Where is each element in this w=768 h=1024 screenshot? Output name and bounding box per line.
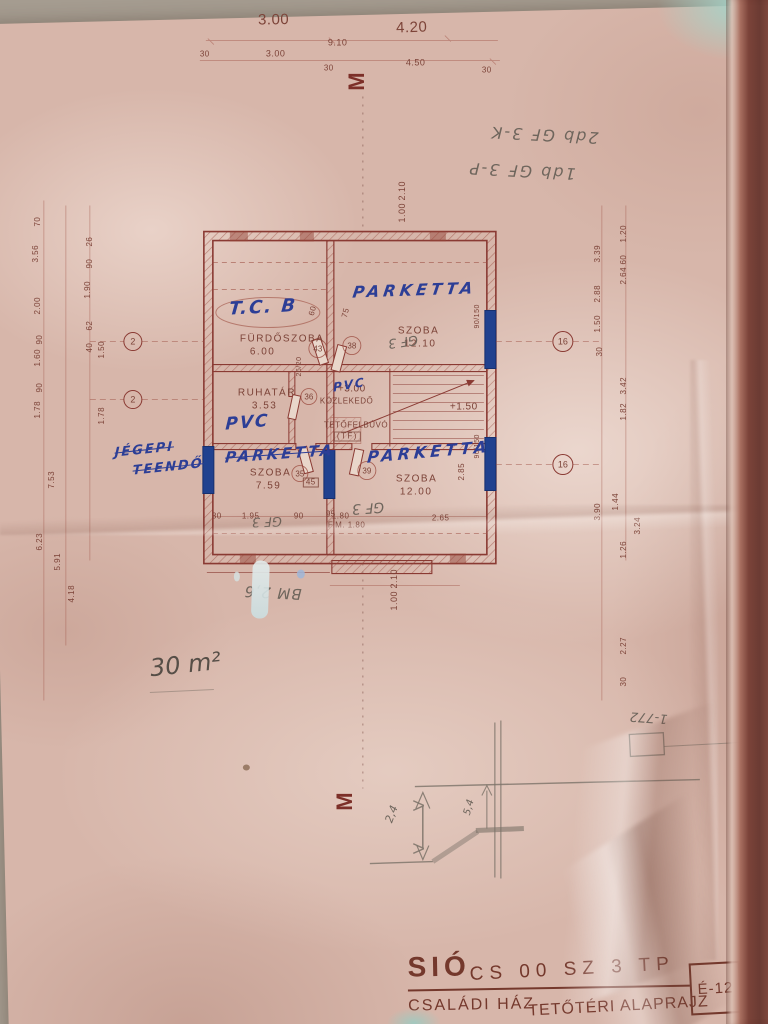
dim-label: 30 bbox=[324, 65, 334, 73]
dim-label: 2.10 bbox=[390, 569, 399, 589]
roof-hatch-label: TETŐFELBÚVÓ bbox=[324, 422, 388, 430]
pencil-area-note: 30 m² bbox=[149, 649, 222, 680]
dim-label: 1.50 bbox=[594, 315, 602, 333]
section-marker-top: M bbox=[344, 72, 370, 90]
dim-label: 40 bbox=[86, 343, 94, 353]
dim-label: 2.00 bbox=[34, 297, 42, 315]
axis-label: 2 bbox=[130, 337, 135, 347]
dim-label: 30 bbox=[596, 347, 604, 357]
axis-label: 16 bbox=[558, 460, 568, 470]
dim-label: 2.88 bbox=[594, 285, 602, 303]
dim-label: 45 bbox=[303, 478, 319, 488]
pencil-note-top-right-1: 2db GF 3-K bbox=[490, 124, 599, 146]
bathroom-finish-note: T.C. B bbox=[228, 297, 298, 319]
room-tag: 38 bbox=[347, 342, 356, 351]
room-tag: 43 bbox=[313, 345, 322, 354]
axis-label: 16 bbox=[558, 337, 568, 347]
room-name: FÜRDŐSZOBA bbox=[240, 335, 324, 345]
dim-label: 1.90 bbox=[84, 281, 92, 299]
room-tag: 36 bbox=[304, 393, 313, 402]
dust-speck bbox=[243, 765, 250, 771]
dim-label: 1.20 bbox=[620, 225, 628, 243]
dim-label: 5.91 bbox=[54, 553, 62, 571]
room-tag: 39 bbox=[362, 467, 371, 476]
room-area: 12.00 bbox=[400, 488, 433, 498]
dim-label: 3.00 bbox=[266, 50, 286, 59]
dim-label: 1.78 bbox=[34, 401, 42, 419]
axis-label: 2 bbox=[130, 395, 135, 405]
room-area: 3.53 bbox=[252, 402, 277, 412]
dim-label: 2.10 bbox=[398, 181, 407, 201]
dim-label: 3.56 bbox=[32, 245, 40, 263]
room-area: 6.00 bbox=[250, 348, 275, 358]
horizontal-fold-crease bbox=[0, 505, 768, 535]
room-area: 7.59 bbox=[256, 482, 281, 492]
dim-label: 1.60 bbox=[34, 349, 42, 367]
pencil-note-top-right-2: 1db GF 3-P bbox=[468, 160, 577, 182]
correction-paint-streak bbox=[251, 560, 270, 619]
dim-label: 2.85 bbox=[458, 463, 466, 481]
dim-label: 26/20 bbox=[296, 357, 303, 377]
dim-label: 90 bbox=[86, 259, 94, 269]
dim-label: 70 bbox=[34, 217, 42, 227]
dim-label: 7.53 bbox=[48, 471, 56, 489]
photo-of-floor-plan: 2 2 16 16 43 38 36 bbox=[0, 0, 768, 1024]
room-finish-note: PVC bbox=[225, 413, 270, 434]
blue-paint-dot bbox=[297, 570, 305, 579]
dim-label: 1.00 bbox=[398, 203, 407, 223]
room-name: KÖZLEKEDŐ bbox=[320, 398, 373, 406]
light-paint-dot bbox=[234, 572, 240, 582]
dim-label: 1.26 bbox=[620, 541, 628, 559]
dim-label: 1.78 bbox=[98, 407, 106, 425]
roof-hatch-tag: (TF) bbox=[334, 432, 361, 442]
dim-label: 3.00 bbox=[258, 12, 289, 28]
dim-label: 1.50 bbox=[98, 341, 106, 359]
dim-label: 90 bbox=[36, 383, 44, 393]
dim-label: 1.00 bbox=[390, 591, 399, 611]
folder-edge-strip bbox=[726, 0, 768, 1024]
dim-label: 3.39 bbox=[594, 245, 602, 263]
section-marker-bottom: M bbox=[332, 792, 358, 810]
room-finish-note: PARKETTA bbox=[352, 280, 478, 300]
dim-label: 90/150 bbox=[474, 304, 481, 328]
dim-label: 2.64 bbox=[620, 267, 628, 285]
dim-label: 4.20 bbox=[396, 19, 428, 35]
dim-label: 90 bbox=[36, 335, 44, 345]
dim-label: 30 bbox=[482, 67, 492, 75]
dim-label: 26 bbox=[86, 237, 94, 247]
room-name: RUHATÁR bbox=[238, 389, 296, 399]
dim-label: 30 bbox=[620, 677, 628, 687]
dim-label: 6.23 bbox=[36, 533, 44, 551]
dim-label: 4.18 bbox=[68, 585, 76, 603]
dim-label: 30 bbox=[200, 51, 210, 59]
dim-label: 1.82 bbox=[620, 403, 628, 421]
dim-label: 4.50 bbox=[406, 59, 426, 68]
dim-label: 62 bbox=[86, 321, 94, 331]
dim-label: 2.27 bbox=[620, 637, 628, 655]
room-name: SZOBA bbox=[250, 469, 291, 479]
dim-label: +1.50 bbox=[450, 403, 478, 413]
dim-label: 9.10 bbox=[328, 39, 348, 48]
room-name: SZOBA bbox=[396, 475, 437, 485]
pencil-gf-note-1: GF 3 bbox=[387, 333, 418, 350]
dim-label: 3.42 bbox=[620, 377, 628, 395]
dim-label: 60 bbox=[620, 255, 628, 265]
